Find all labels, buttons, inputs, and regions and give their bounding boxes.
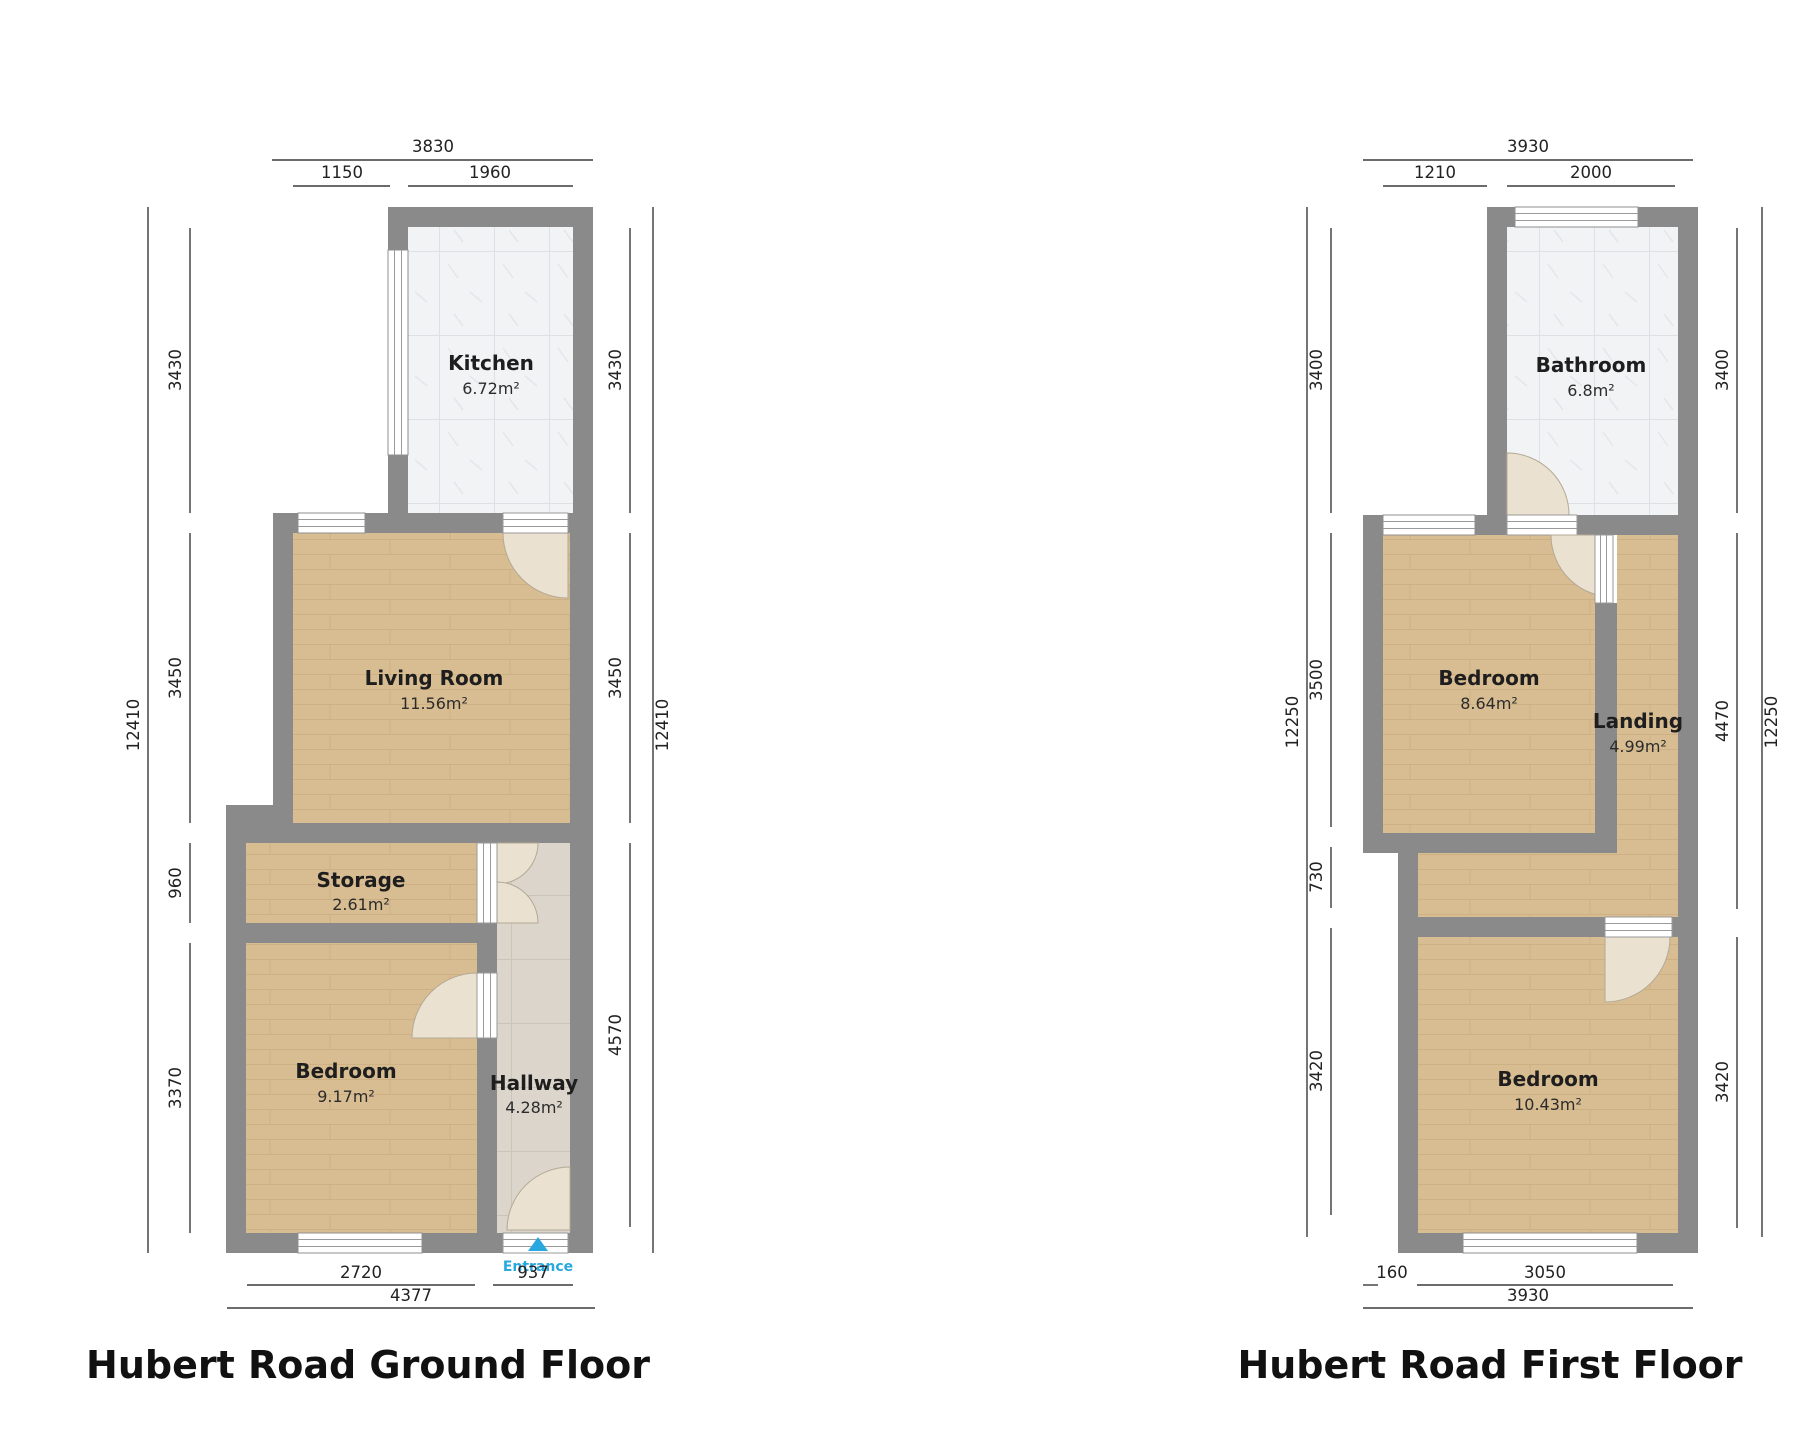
- bathroom-window: [1515, 207, 1638, 227]
- wall-segment: [568, 513, 593, 533]
- bedroom-back-label: Bedroom: [1497, 1067, 1598, 1091]
- bedroom-front-label: Bedroom: [1438, 666, 1539, 690]
- wall-segment: [388, 207, 408, 250]
- dimension-label: 3500: [1307, 659, 1326, 701]
- dimension-label: 3420: [1307, 1050, 1326, 1092]
- living-room-label: Living Room: [365, 666, 504, 690]
- wall-segment: [1398, 917, 1605, 937]
- dimension-label: 4377: [390, 1286, 432, 1305]
- dimension-label: 3450: [606, 657, 625, 699]
- wall-segment: [573, 207, 593, 533]
- dimension-label: 3400: [1713, 349, 1732, 391]
- dimension-label: 1210: [1414, 163, 1456, 182]
- wall-segment: [1398, 853, 1418, 1253]
- dimension-label: 960: [166, 867, 185, 899]
- wall-segment: [388, 207, 593, 227]
- dimension-label: 3430: [166, 349, 185, 391]
- dimension-label: 730: [1307, 861, 1326, 893]
- dimension-label: 3430: [606, 349, 625, 391]
- wall-segment: [1678, 535, 1698, 1253]
- wall-segment: [1637, 1233, 1698, 1253]
- ground-floor-title: Hubert Road Ground Floor: [86, 1343, 650, 1387]
- ground-floor-plan: Kitchen 6.72m² Living Room 11.56m² Stora…: [86, 137, 672, 1387]
- bathroom-label: Bathroom: [1536, 353, 1647, 377]
- window: [298, 1233, 422, 1253]
- kitchen-window: [388, 250, 408, 455]
- wall-segment: [226, 923, 497, 943]
- door-panel: [477, 843, 497, 923]
- dimension-label: 1960: [469, 163, 511, 182]
- wall-segment: [1398, 1233, 1463, 1253]
- wall-segment: [273, 823, 593, 843]
- dimension-label: 2000: [1570, 163, 1612, 182]
- dimension-label: 160: [1376, 1263, 1408, 1282]
- dimension-label: 12410: [124, 699, 143, 752]
- door-panel: [1507, 515, 1577, 535]
- dimension-label: 3930: [1507, 137, 1549, 156]
- floorplan-canvas: Kitchen 6.72m² Living Room 11.56m² Stora…: [0, 0, 1820, 1440]
- window: [1383, 515, 1475, 535]
- wall-segment: [1475, 515, 1487, 535]
- window: [298, 513, 365, 533]
- wall-segment: [365, 513, 503, 533]
- landing-label: Landing: [1593, 709, 1683, 733]
- door-panel: [1595, 535, 1613, 603]
- dimension-label: 3930: [1507, 1286, 1549, 1305]
- wall-segment: [1487, 207, 1507, 535]
- dimension-label: 4470: [1713, 700, 1732, 742]
- wall-segment: [477, 1038, 497, 1233]
- wall-segment: [226, 1233, 298, 1253]
- dimension-label: 3420: [1713, 1061, 1732, 1103]
- dimension-label: 3450: [166, 657, 185, 699]
- wall-segment: [388, 455, 408, 513]
- first-floor-plan: Bathroom 6.8m² Bedroom 8.64m² Landing 4.…: [1237, 137, 1781, 1387]
- wall-segment: [226, 805, 246, 1253]
- dimension-label: 1150: [321, 163, 363, 182]
- wall-segment: [273, 513, 293, 843]
- door-panel: [503, 513, 568, 533]
- hallway-area: 4.28m²: [505, 1098, 563, 1117]
- dimension-label: 3050: [1524, 1263, 1566, 1282]
- bedroom-front-window: [1383, 515, 1475, 535]
- wall-segment: [1672, 917, 1698, 937]
- wall-segment: [1577, 515, 1698, 535]
- wall-segment: [422, 1233, 503, 1253]
- kitchen-label: Kitchen: [448, 351, 534, 375]
- window: [1463, 1233, 1637, 1253]
- wall-segment: [1363, 515, 1383, 853]
- wall-segment: [1487, 515, 1507, 535]
- kitchen-area: 6.72m²: [462, 379, 520, 398]
- bedroom-front-area: 8.64m²: [1460, 694, 1518, 713]
- dimension-label: 12250: [1283, 696, 1302, 749]
- living-room-area: 11.56m²: [400, 694, 468, 713]
- dimension-label: 3830: [412, 137, 454, 156]
- bathroom-area: 6.8m²: [1567, 381, 1614, 400]
- window: [1515, 207, 1638, 227]
- dimension-label: 4570: [606, 1014, 625, 1056]
- door-panel: [477, 973, 497, 1038]
- storage-label: Storage: [317, 868, 406, 892]
- dimension-label: 12410: [653, 699, 672, 752]
- floorplan-page: Kitchen 6.72m² Living Room 11.56m² Stora…: [0, 0, 1820, 1440]
- bedroom-label: Bedroom: [295, 1059, 396, 1083]
- dimension-label: 3400: [1307, 349, 1326, 391]
- dimension-label: 3370: [166, 1067, 185, 1109]
- bedroom-back-area: 10.43m²: [1514, 1095, 1582, 1114]
- bedroom-window: [298, 1233, 422, 1253]
- wall-segment: [570, 533, 593, 1253]
- wall-segment: [477, 943, 497, 973]
- dimension-label: 937: [517, 1263, 549, 1282]
- dimension-label: 2720: [340, 1263, 382, 1282]
- storage-area: 2.61m²: [332, 895, 390, 914]
- window: [388, 250, 408, 455]
- door-panel: [1605, 917, 1672, 937]
- hallway-label: Hallway: [490, 1071, 578, 1095]
- living-room-window: [298, 513, 365, 533]
- dimension-label: 12250: [1762, 696, 1781, 749]
- wall-segment: [1363, 833, 1617, 853]
- landing-area: 4.99m²: [1609, 737, 1667, 756]
- landing-floor-lower: [1418, 853, 1678, 917]
- wall-segment: [1678, 207, 1698, 535]
- bedroom-area: 9.17m²: [317, 1087, 375, 1106]
- wall-segment: [568, 1233, 593, 1253]
- first-floor-title: Hubert Road First Floor: [1237, 1343, 1742, 1387]
- bedroom-back-window: [1463, 1233, 1637, 1253]
